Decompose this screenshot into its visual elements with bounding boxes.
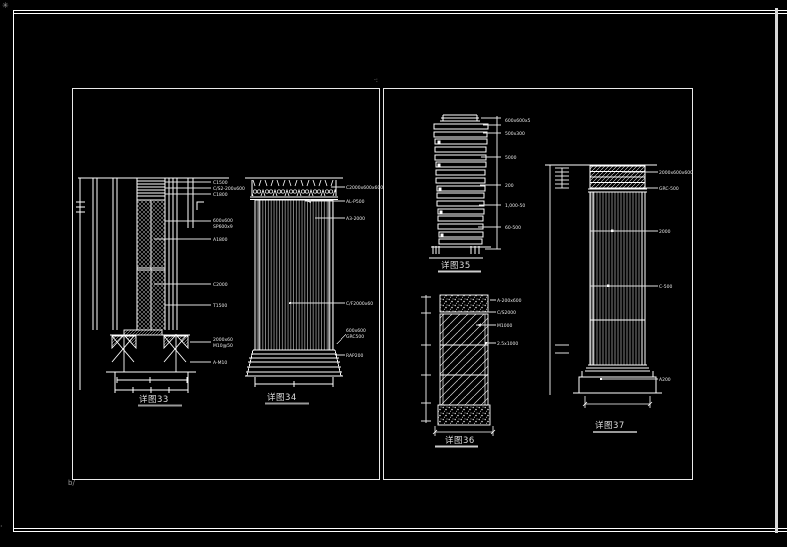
sheet-border-left bbox=[13, 10, 14, 531]
annotation-label: C-500 bbox=[659, 284, 672, 290]
detail-36-drawing: A-200x600 C/S2000 M1000 2.5x1000 详图36 bbox=[418, 292, 545, 452]
annotation-labels: C2000x600x600 AL-P500 A3-2000 C/F2000x60… bbox=[346, 185, 383, 359]
capital-scroll-band bbox=[252, 180, 336, 196]
annotation-label: 600x600x5 bbox=[505, 118, 531, 124]
sheet-border-top-outer bbox=[13, 10, 787, 11]
sheet-border-bottom-outer bbox=[13, 531, 787, 532]
annotation-label: 2.5x1000 bbox=[497, 341, 518, 347]
detail-caption: 详图37 bbox=[595, 420, 625, 431]
detail-37-drawing: 2000x600x600 GRC-500 2000 C-500 A200 详图3… bbox=[545, 158, 695, 440]
annotation-label: 5000 bbox=[505, 155, 517, 161]
detail-caption: 详图33 bbox=[139, 394, 169, 405]
annotation-label: A-200x600 bbox=[497, 298, 522, 304]
annotation-label: C1800 bbox=[213, 192, 228, 198]
annotation-label: C/S2-200x600 bbox=[213, 186, 245, 192]
cad-sheet: ✳ · b/ ·: bbox=[0, 0, 787, 547]
sheet-border-right bbox=[775, 8, 778, 533]
annotation-label: SP600x9 bbox=[213, 224, 233, 230]
annotation-label: 600x600 bbox=[213, 218, 233, 224]
annotation-labels: C1500 C/S2-200x600 C1800 600x600 SP600x9… bbox=[212, 180, 245, 366]
annotation-label: C2000 bbox=[213, 282, 228, 288]
annotation-label: 2000x60 bbox=[213, 337, 233, 343]
annotation-label: A-M10 bbox=[213, 360, 227, 366]
dimension-lines bbox=[550, 165, 569, 395]
annotation-label: T1500 bbox=[212, 303, 227, 309]
core-crosshatch-lower bbox=[138, 270, 165, 330]
annotation-label: 2000 bbox=[659, 229, 671, 235]
annotation-label: C2000x600x600 bbox=[346, 185, 383, 191]
detail-caption: 详图35 bbox=[441, 260, 471, 271]
annotation-label: AL-P500 bbox=[346, 199, 365, 205]
panel-top-mark: ·: bbox=[374, 77, 378, 85]
annotation-label: A200 bbox=[659, 377, 671, 383]
dimension-lines bbox=[421, 295, 431, 423]
annotation-label: C/S2000 bbox=[497, 310, 516, 316]
annotation-label: 200 bbox=[505, 183, 514, 189]
annotation-labels: A-200x600 C/S2000 M1000 2.5x1000 bbox=[497, 298, 522, 347]
dimension-lines bbox=[255, 377, 333, 387]
detail-33-drawing: C1500 C/S2-200x600 C1800 600x600 SP600x9… bbox=[76, 172, 248, 412]
dimension-lines bbox=[115, 372, 188, 393]
annotation-labels: 2000x600x600 GRC-500 2000 C-500 A200 bbox=[659, 170, 693, 383]
fluted-column-lines bbox=[545, 165, 662, 393]
below-panel-mark: b/ bbox=[68, 479, 75, 487]
annotation-label: A1800 bbox=[213, 237, 228, 243]
bottom-left-mark-icon: · bbox=[0, 523, 3, 531]
annotation-label: 1,000-50 bbox=[505, 203, 525, 209]
annotation-label: GRC500 bbox=[346, 334, 364, 340]
louver-column-lines bbox=[429, 115, 491, 258]
annotation-label: GRC-500 bbox=[659, 186, 679, 192]
annotation-label: M1000 bbox=[497, 323, 512, 329]
annotation-label: C/F2000x60 bbox=[346, 301, 373, 307]
sheet-border-bottom-inner bbox=[13, 528, 787, 529]
leader-bracket-icon bbox=[197, 202, 204, 210]
detail-caption: 详图36 bbox=[445, 435, 475, 446]
bottom-dimension bbox=[583, 396, 652, 408]
detail-caption: 详图34 bbox=[267, 392, 297, 403]
detail-35-drawing: 600x600x5 500x300 5000 200 1,000-50 60-5… bbox=[425, 106, 545, 276]
corner-mark-icon: ✳ bbox=[2, 2, 9, 10]
annotation-label: 600x600 bbox=[346, 328, 366, 334]
base-anchors bbox=[106, 330, 196, 372]
detail-34-drawing: C2000x600x600 AL-P500 A3-2000 C/F2000x60… bbox=[245, 172, 380, 407]
annotation-label: C1500 bbox=[213, 180, 228, 186]
annotation-label: 60-500 bbox=[505, 225, 521, 231]
annotation-label: M10@50 bbox=[213, 343, 233, 349]
annotation-labels: 600x600x5 500x300 5000 200 1,000-50 60-5… bbox=[505, 118, 531, 231]
fluted-column-lines bbox=[245, 178, 343, 376]
bottom-dimension bbox=[433, 426, 495, 436]
section-shapes bbox=[438, 295, 490, 425]
annotation-label: RAP200 bbox=[346, 353, 363, 359]
annotation-label: A3-2000 bbox=[346, 216, 365, 222]
sheet-border-top-inner bbox=[13, 13, 787, 14]
annotation-label: 500x300 bbox=[505, 131, 525, 137]
annotation-label: 2000x600x600 bbox=[659, 170, 693, 176]
core-crosshatch bbox=[138, 200, 165, 268]
